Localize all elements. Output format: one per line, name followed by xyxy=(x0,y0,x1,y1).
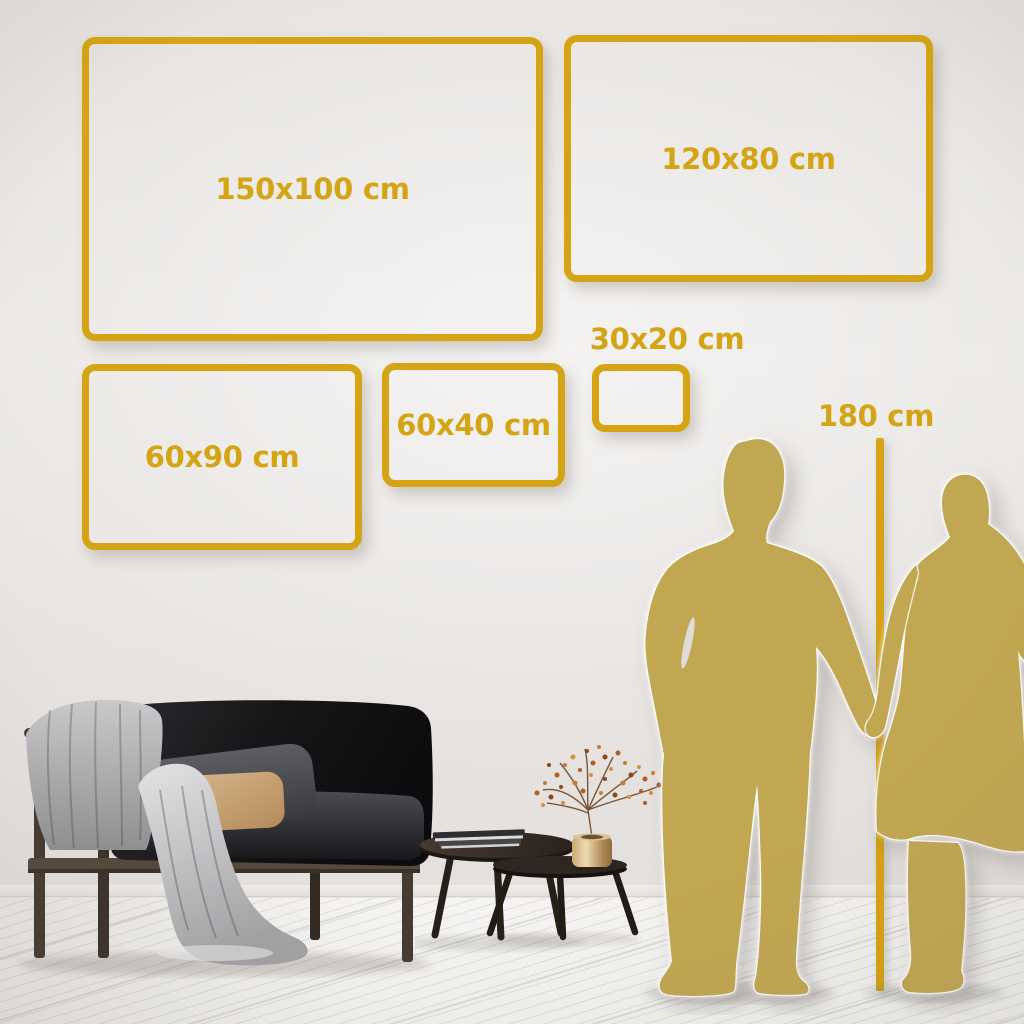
size-guide-scene: 150x100 cm 120x80 cm 60x90 cm 60x40 cm 3… xyxy=(0,0,1024,1024)
size-label-60x90: 60x90 cm xyxy=(145,440,300,474)
sofa-illustration xyxy=(10,690,440,980)
size-label-60x40: 60x40 cm xyxy=(396,408,551,442)
size-box-120x80: 120x80 cm xyxy=(564,35,933,282)
size-box-30x20 xyxy=(592,364,690,432)
couple-silhouette xyxy=(610,425,1024,1015)
size-box-60x90: 60x90 cm xyxy=(82,364,362,550)
size-box-60x40: 60x40 cm xyxy=(382,363,565,487)
size-label-150x100: 150x100 cm xyxy=(215,172,409,206)
woman-leg xyxy=(902,841,965,993)
size-label-30x20: 30x20 cm xyxy=(590,322,745,356)
books-stack xyxy=(433,829,526,849)
man-silhouette xyxy=(645,439,878,996)
throw-blanket xyxy=(26,700,163,850)
size-label-30x20-wrap: 30x20 cm xyxy=(586,322,748,356)
brass-vase xyxy=(570,834,614,873)
size-box-150x100: 150x100 cm xyxy=(82,37,543,341)
size-label-120x80: 120x80 cm xyxy=(661,142,835,176)
